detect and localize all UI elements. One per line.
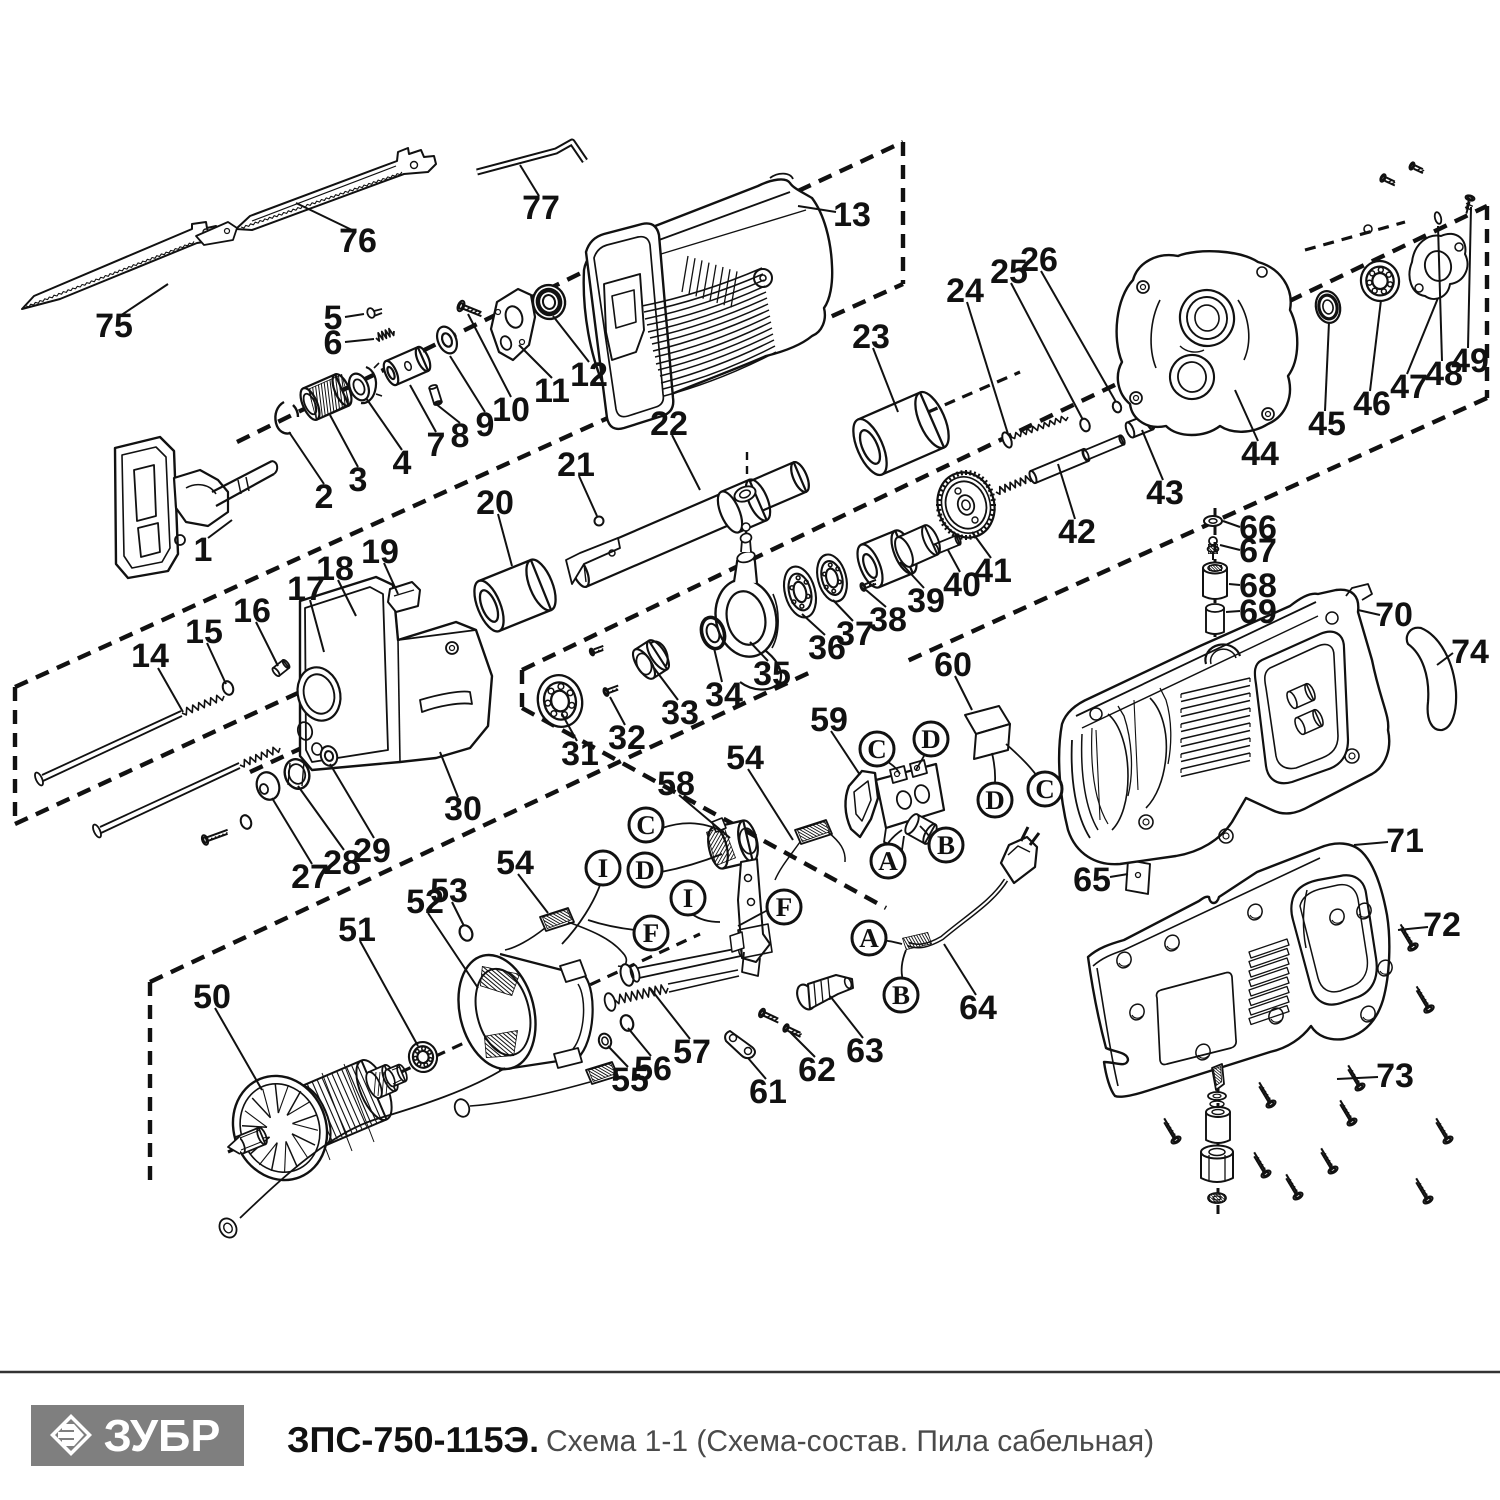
svg-text:F: F (776, 892, 793, 922)
svg-text:C: C (636, 810, 656, 840)
svg-text:45: 45 (1308, 405, 1346, 443)
svg-text:B: B (892, 980, 910, 1010)
svg-text:70: 70 (1375, 596, 1413, 634)
svg-text:18: 18 (316, 550, 354, 588)
svg-text:A: A (859, 923, 879, 953)
svg-text:67: 67 (1239, 532, 1277, 570)
svg-text:32: 32 (608, 719, 646, 757)
svg-text:19: 19 (361, 533, 399, 571)
svg-text:C: C (867, 734, 887, 764)
svg-text:74: 74 (1451, 633, 1489, 671)
svg-text:34: 34 (705, 676, 743, 714)
svg-text:24: 24 (946, 272, 984, 310)
svg-text:39: 39 (907, 582, 945, 620)
svg-text:50: 50 (193, 978, 231, 1016)
svg-text:42: 42 (1058, 513, 1096, 551)
svg-text:63: 63 (846, 1032, 884, 1070)
svg-text:64: 64 (959, 989, 997, 1027)
svg-text:71: 71 (1386, 822, 1424, 860)
svg-text:60: 60 (934, 646, 972, 684)
svg-text:62: 62 (798, 1051, 836, 1089)
svg-text:29: 29 (353, 832, 391, 870)
svg-text:69: 69 (1239, 593, 1277, 631)
svg-text:12: 12 (570, 356, 608, 394)
svg-text:C: C (1035, 774, 1055, 804)
svg-text:13: 13 (833, 196, 871, 234)
svg-text:B: B (937, 830, 955, 860)
svg-text:35: 35 (753, 655, 791, 693)
svg-text:7: 7 (427, 426, 446, 464)
svg-text:16: 16 (233, 592, 271, 630)
svg-text:47: 47 (1390, 368, 1428, 406)
svg-text:49: 49 (1451, 342, 1489, 380)
svg-text:30: 30 (444, 790, 482, 828)
svg-text:65: 65 (1073, 861, 1111, 899)
svg-text:11: 11 (534, 372, 570, 410)
svg-text:D: D (985, 785, 1005, 815)
svg-text:F: F (643, 918, 660, 948)
svg-text:2: 2 (315, 478, 334, 516)
svg-text:43: 43 (1146, 474, 1184, 512)
svg-text:51: 51 (338, 911, 376, 949)
svg-text:10: 10 (492, 391, 530, 429)
svg-text:73: 73 (1376, 1057, 1414, 1095)
svg-text:ЗУБР: ЗУБР (104, 1410, 221, 1461)
svg-text:3: 3 (349, 461, 368, 499)
svg-text:57: 57 (673, 1033, 711, 1071)
svg-text:41: 41 (974, 552, 1012, 590)
svg-text:33: 33 (661, 694, 699, 732)
svg-text:1: 1 (194, 531, 213, 569)
svg-text:46: 46 (1353, 385, 1391, 423)
svg-text:54: 54 (496, 844, 534, 882)
svg-text:Схема 1-1 (Схема-состав. Пила: Схема 1-1 (Схема-состав. Пила сабельная) (546, 1425, 1154, 1458)
svg-text:75: 75 (95, 307, 133, 345)
svg-text:I: I (598, 853, 609, 883)
svg-text:D: D (921, 724, 941, 754)
svg-text:38: 38 (869, 601, 907, 639)
svg-text:D: D (635, 855, 655, 885)
svg-text:15: 15 (185, 613, 223, 651)
svg-text:58: 58 (657, 765, 695, 803)
svg-text:6: 6 (324, 324, 343, 362)
svg-text:72: 72 (1423, 906, 1461, 944)
svg-text:23: 23 (852, 318, 890, 356)
svg-text:61: 61 (749, 1073, 787, 1111)
svg-text:31: 31 (561, 735, 599, 773)
svg-text:21: 21 (557, 446, 595, 484)
svg-text:22: 22 (650, 405, 688, 443)
svg-text:14: 14 (131, 637, 169, 675)
svg-text:56: 56 (634, 1050, 672, 1088)
svg-text:A: A (878, 846, 898, 876)
svg-text:77: 77 (522, 189, 560, 227)
svg-text:53: 53 (430, 872, 468, 910)
svg-text:76: 76 (339, 222, 377, 260)
svg-text:20: 20 (476, 484, 514, 522)
svg-text:44: 44 (1241, 435, 1279, 473)
svg-text:59: 59 (810, 701, 848, 739)
svg-text:54: 54 (726, 739, 764, 777)
svg-text:8: 8 (451, 417, 470, 455)
svg-text:26: 26 (1020, 241, 1058, 279)
svg-text:ЗПС-750-115Э.: ЗПС-750-115Э. (287, 1419, 539, 1460)
svg-text:I: I (683, 883, 694, 913)
svg-text:4: 4 (393, 444, 412, 482)
